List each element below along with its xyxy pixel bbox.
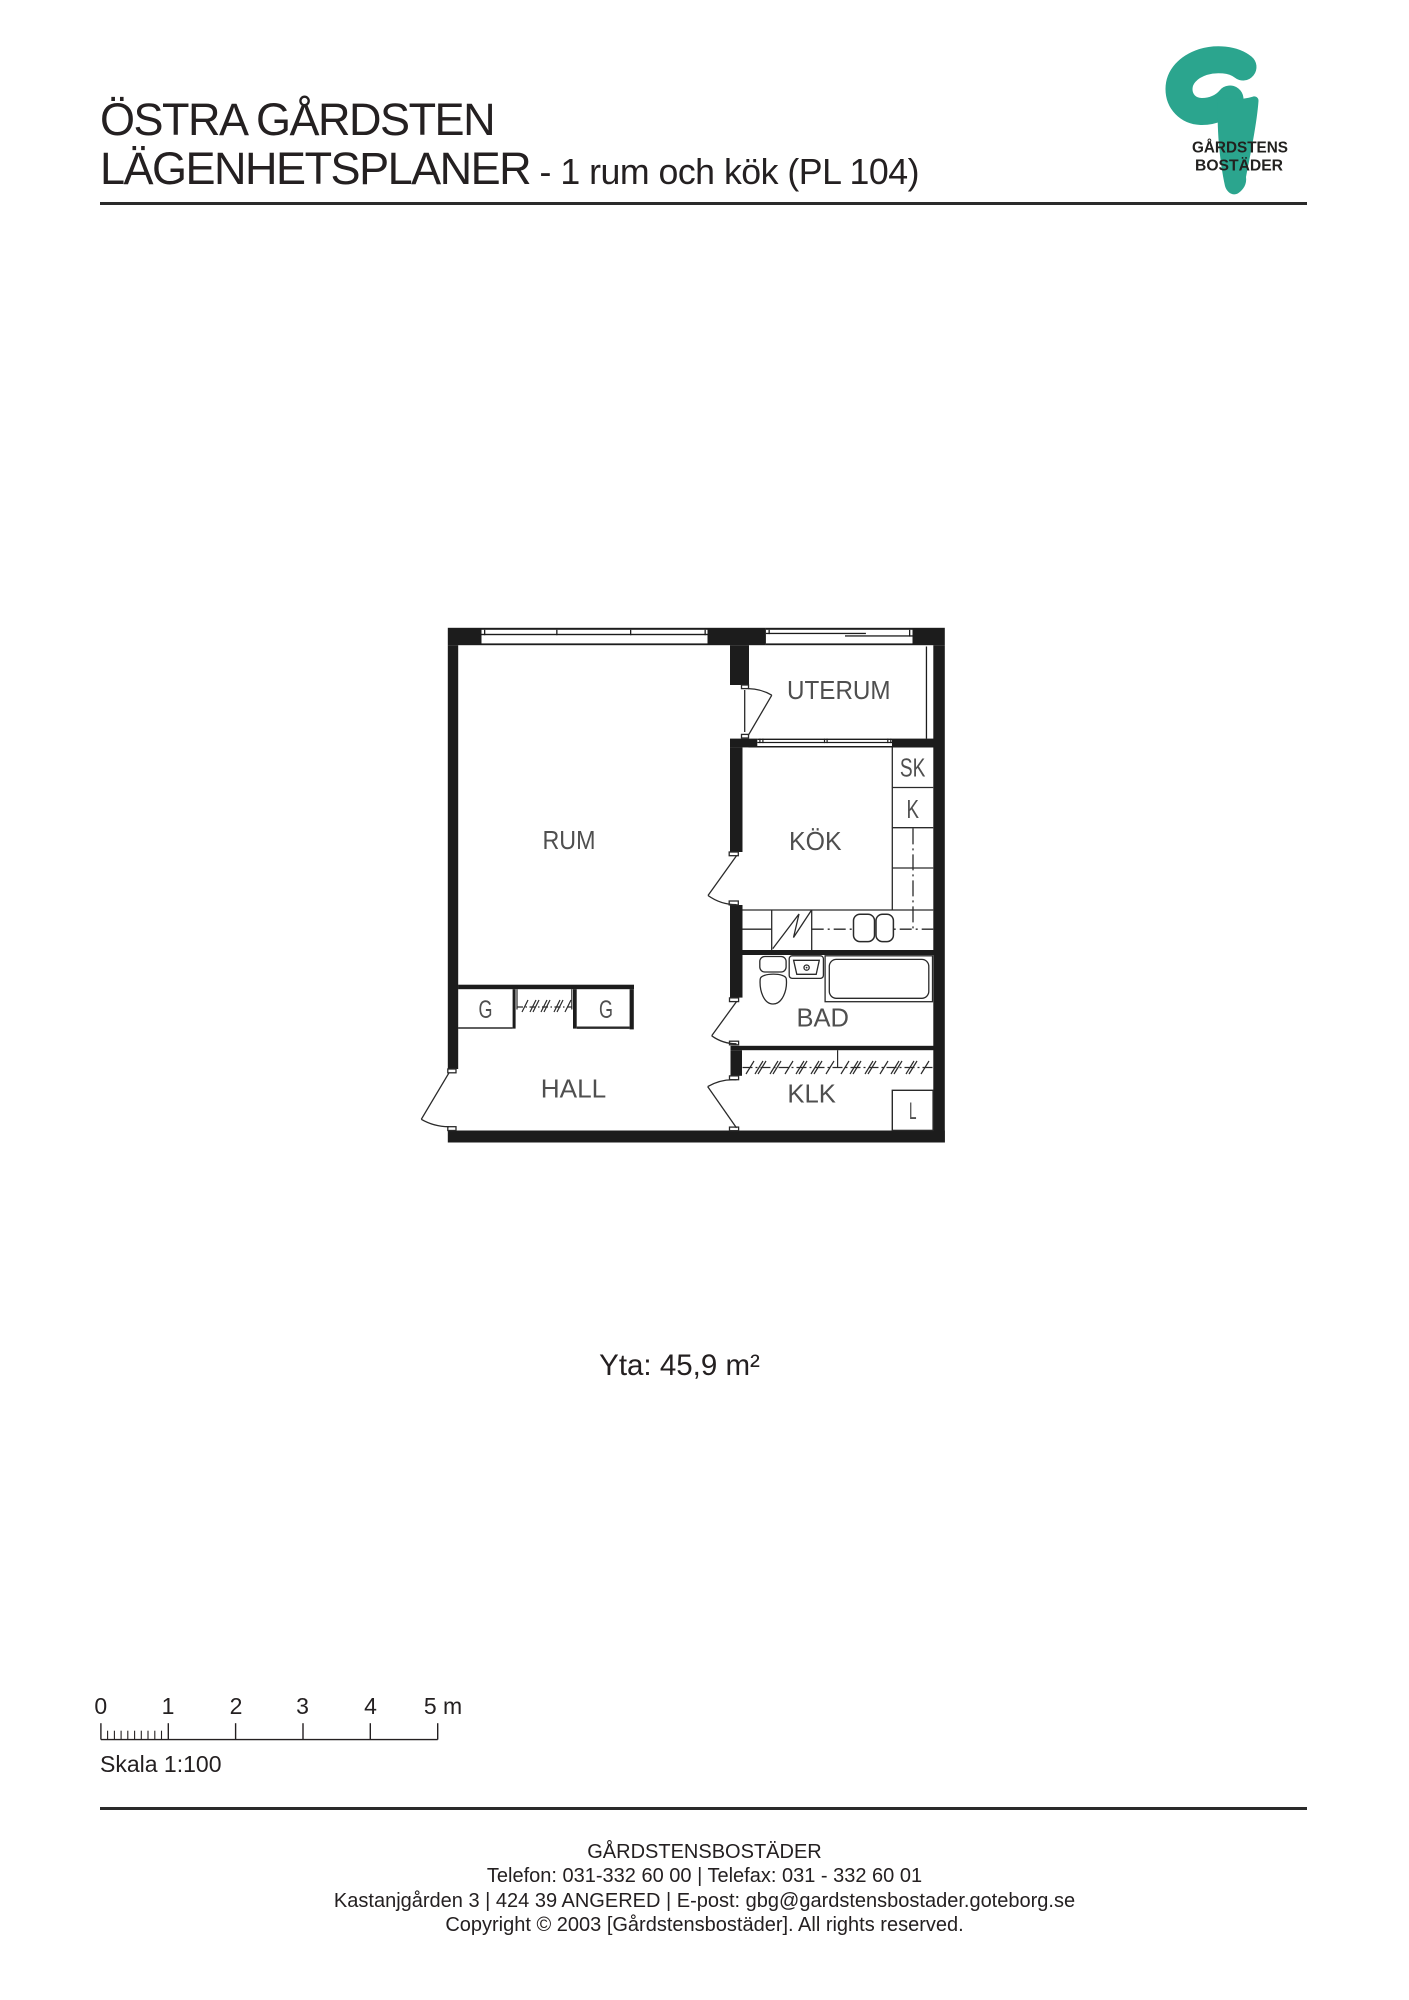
svg-text:GÅRDSTENS: GÅRDSTENS	[1192, 138, 1288, 157]
svg-text:HALL: HALL	[541, 1074, 607, 1104]
svg-text:UTERUM: UTERUM	[787, 675, 891, 705]
svg-text:G: G	[479, 996, 493, 1024]
svg-text:0: 0	[94, 1693, 107, 1719]
svg-text:3: 3	[296, 1693, 309, 1719]
svg-text:BAD: BAD	[796, 1003, 849, 1033]
svg-text:KÖK: KÖK	[789, 826, 842, 856]
svg-text:BOSTÄDER: BOSTÄDER	[1195, 157, 1283, 175]
svg-text:L: L	[909, 1098, 917, 1125]
svg-text:K: K	[907, 794, 920, 824]
svg-text:1: 1	[162, 1693, 175, 1719]
svg-text:5 m: 5 m	[424, 1693, 462, 1719]
svg-text:4: 4	[364, 1693, 377, 1719]
svg-text:SK: SK	[900, 753, 926, 783]
svg-text:KLK: KLK	[787, 1078, 836, 1108]
svg-text:2: 2	[230, 1693, 243, 1719]
svg-text:G: G	[599, 996, 613, 1024]
svg-text:RUM: RUM	[543, 825, 596, 855]
